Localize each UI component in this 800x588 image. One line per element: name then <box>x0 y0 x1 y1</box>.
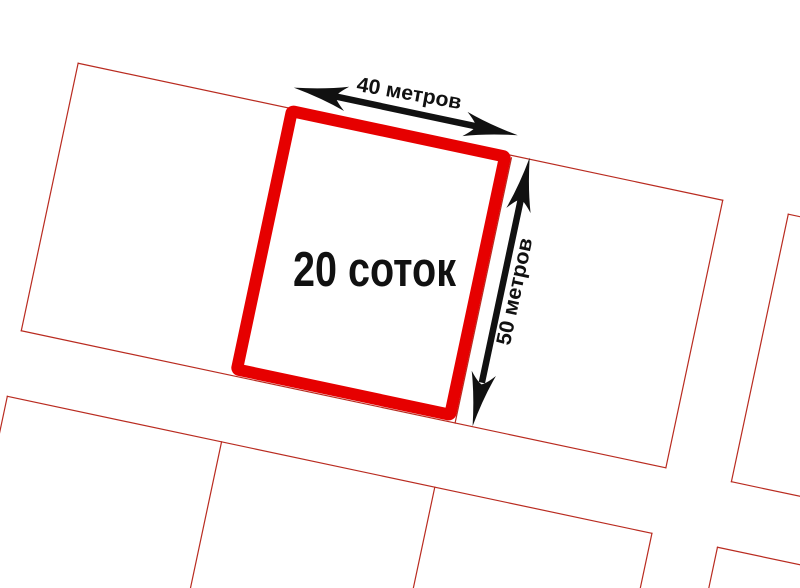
svg-text:20 соток: 20 соток <box>293 243 456 297</box>
